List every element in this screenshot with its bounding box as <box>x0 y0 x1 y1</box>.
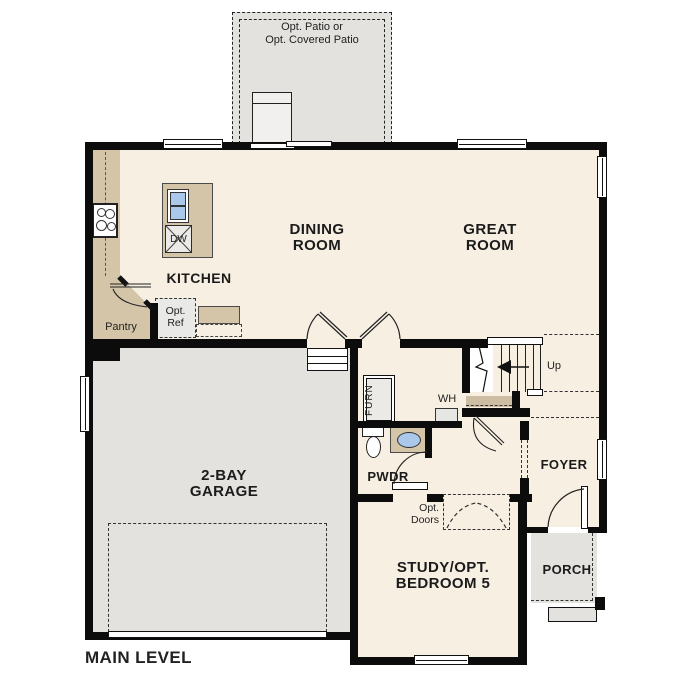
sink-basin <box>170 192 186 206</box>
dining-room-label: DINING ROOM <box>267 222 367 254</box>
stairwell-left-wall <box>462 342 470 393</box>
garage-label: 2-BAY GARAGE <box>174 468 274 500</box>
plan-title: MAIN LEVEL <box>85 650 245 666</box>
garage-window <box>80 376 90 432</box>
front-door-leaf <box>581 486 588 529</box>
closet-right-wall <box>512 391 520 410</box>
kitchen-label: KITCHEN <box>159 270 239 286</box>
kitchen-window <box>163 139 223 149</box>
patio-label-line1: Opt. Patio or <box>281 21 343 33</box>
water-heater-label: WH <box>433 393 461 406</box>
study-right-wall <box>518 497 527 665</box>
stove <box>92 203 118 238</box>
stairs-treads <box>493 345 541 392</box>
toilet-bowl <box>366 436 381 458</box>
foyer-archway-dashed <box>531 417 599 418</box>
sink-basin <box>170 206 186 220</box>
burner-icon <box>96 220 107 231</box>
foyer-window <box>597 439 607 480</box>
patio-fireplace <box>252 92 292 143</box>
stairs-up-label: Up <box>541 360 567 373</box>
opt-ref-label: Opt. Ref <box>155 305 196 329</box>
foyer-bottom-wall-left <box>520 527 548 533</box>
great-room-label: GREAT ROOM <box>440 222 540 254</box>
dining-bottom-wall <box>400 339 488 348</box>
porch-post <box>595 597 605 610</box>
burner-icon <box>107 222 116 231</box>
patio-label-line2: Opt. Covered Patio <box>265 34 359 46</box>
study-label: STUDY/OPT. BEDROOM 5 <box>368 560 518 592</box>
stairwell-open-above-dashed <box>544 334 599 335</box>
kitchen-bottom-counter <box>198 306 240 324</box>
burner-icon <box>105 209 115 219</box>
hall-opening-dashed-left <box>521 440 522 478</box>
pantry-label: Pantry <box>95 321 147 334</box>
exterior-wall-left-upper <box>85 142 93 342</box>
garage-entry-steps <box>307 348 348 371</box>
stairs-underlay <box>470 345 493 392</box>
closet-rod-dashed <box>466 405 512 406</box>
powder-label: PWDR <box>362 469 414 485</box>
patio-slider-panel-right <box>286 141 332 147</box>
garage-entry-door-gap <box>307 339 345 348</box>
floor-plan: Opt. Patio or Opt. Covered Patio DINING … <box>0 0 687 687</box>
stair-landing-dashed <box>544 391 599 392</box>
water-heater <box>435 408 458 422</box>
porch-label: PORCH <box>539 562 595 578</box>
furnace-label: FURN <box>363 380 395 420</box>
hall-door-gap <box>362 339 400 348</box>
foyer-bottom-wall-right <box>588 527 607 533</box>
dishwasher-label: DW <box>165 233 192 246</box>
foyer-label: FOYER <box>536 457 592 473</box>
opt-doors-label: Opt. Doors <box>401 502 439 526</box>
porch-edge-dashed-bottom <box>531 600 593 601</box>
foyer-left-wall-upper <box>520 421 529 440</box>
hall-opening-dashed-right <box>527 440 528 478</box>
island-sink-unit <box>167 189 189 223</box>
powder-top-wall <box>358 421 462 428</box>
stair-rail-top <box>487 337 543 345</box>
powder-sink <box>397 432 421 448</box>
patio-fireplace-ledge <box>253 103 291 104</box>
great-room-side-window <box>597 156 607 198</box>
kitchen-bottom-cabinet-dashed <box>196 324 242 337</box>
great-room-window <box>457 139 527 149</box>
optional-doors-opening <box>443 494 510 530</box>
study-window <box>414 655 469 665</box>
powder-right-wall <box>425 428 432 458</box>
garage-door-clearance-dashed <box>108 523 327 632</box>
garage-study-wall <box>350 339 358 665</box>
patio-label: Opt. Patio or Opt. Covered Patio <box>232 21 392 47</box>
study-top-wall-mid <box>427 494 443 502</box>
garage-door-slab <box>108 631 327 638</box>
study-top-wall-left <box>350 494 393 502</box>
stair-rail-bottom <box>527 389 543 396</box>
porch-step <box>548 607 597 622</box>
garage-corner-block <box>85 340 120 361</box>
